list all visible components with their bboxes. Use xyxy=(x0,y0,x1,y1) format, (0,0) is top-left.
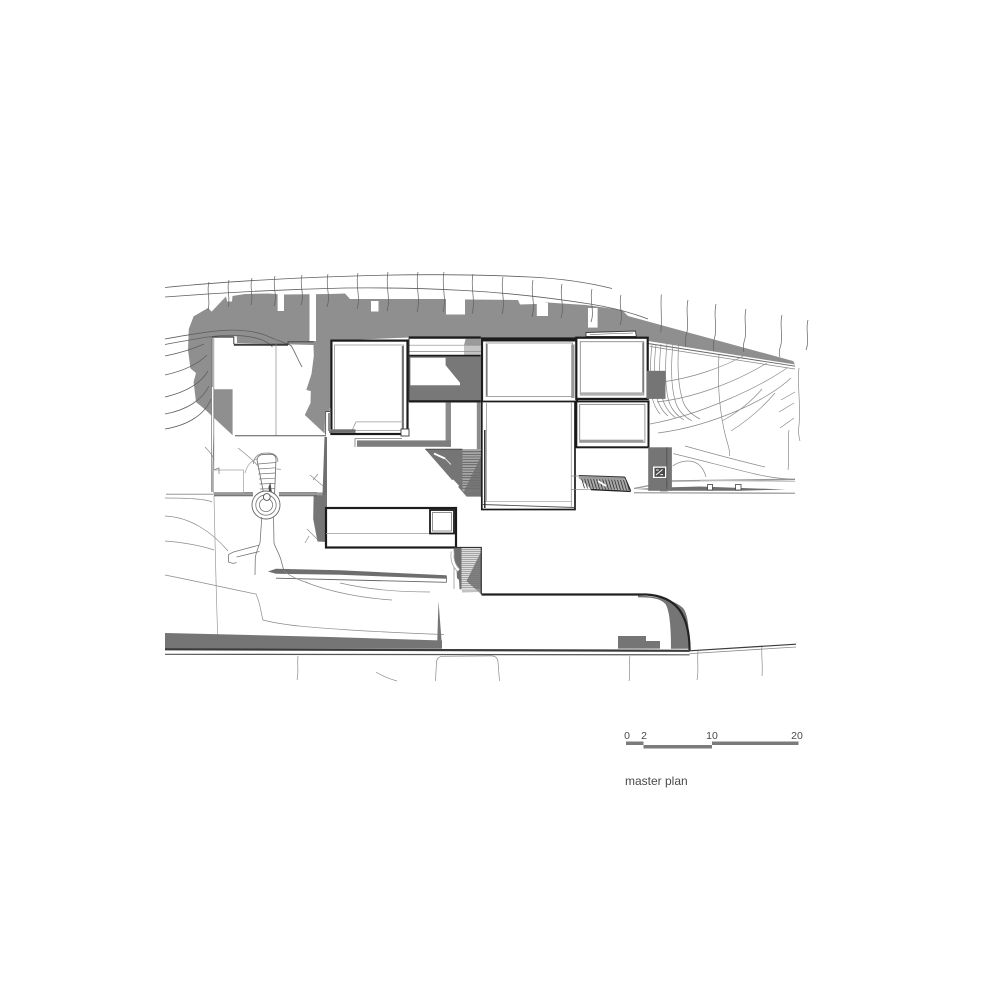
svg-text:master plan: master plan xyxy=(625,774,688,788)
svg-text:20: 20 xyxy=(791,730,803,742)
svg-text:10: 10 xyxy=(706,730,718,742)
svg-text:2: 2 xyxy=(641,730,647,742)
svg-text:0: 0 xyxy=(624,730,630,742)
